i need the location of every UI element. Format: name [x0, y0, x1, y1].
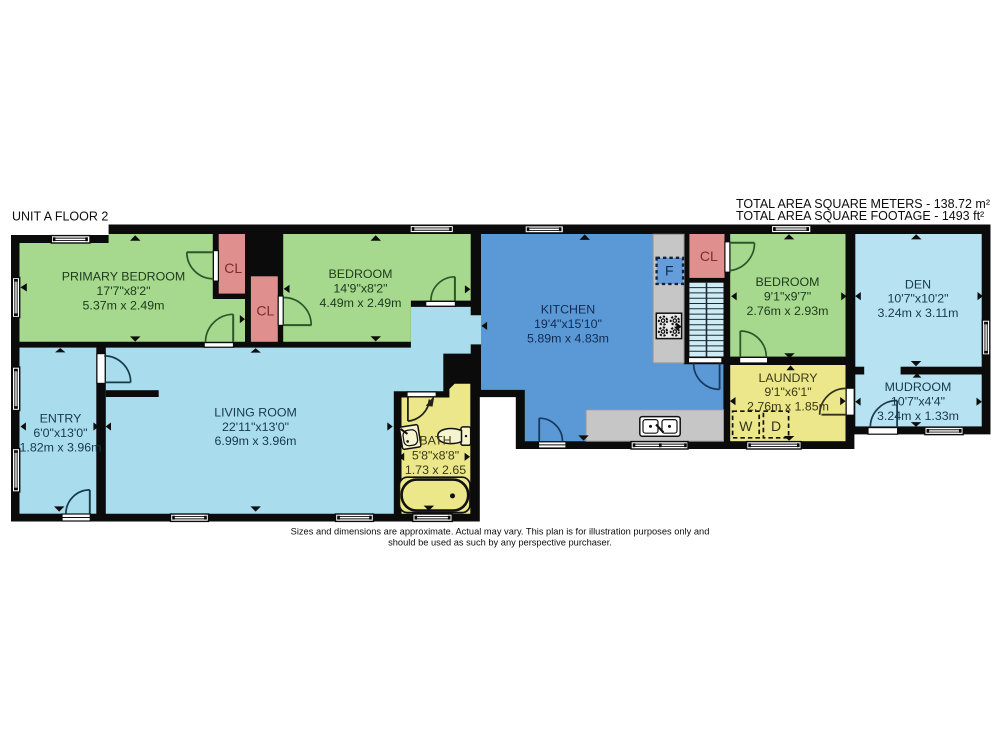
- svg-text:19'4"x15'10": 19'4"x15'10": [534, 317, 602, 331]
- svg-text:9'1"x9'7": 9'1"x9'7": [764, 289, 811, 303]
- svg-text:CL: CL: [256, 303, 274, 319]
- svg-text:W: W: [739, 418, 753, 434]
- svg-text:5'8"x8'8": 5'8"x8'8": [412, 449, 459, 463]
- svg-text:BATH: BATH: [419, 434, 451, 448]
- svg-text:PRIMARY BEDROOM: PRIMARY BEDROOM: [62, 269, 185, 283]
- svg-text:5.37m x 2.49m: 5.37m x 2.49m: [83, 298, 165, 312]
- svg-text:1.82m x 3.96m: 1.82m x 3.96m: [20, 441, 102, 455]
- svg-text:3.24m x 3.11m: 3.24m x 3.11m: [877, 306, 958, 320]
- svg-text:F: F: [665, 262, 674, 278]
- svg-text:9'1"x6'1": 9'1"x6'1": [764, 385, 811, 399]
- svg-text:LAUNDRY: LAUNDRY: [759, 371, 818, 385]
- svg-text:2.76m x 2.93m: 2.76m x 2.93m: [747, 304, 829, 318]
- svg-text:LIVING ROOM: LIVING ROOM: [214, 406, 297, 420]
- svg-text:should be used as such by any: should be used as such by any perspectiv…: [388, 537, 612, 547]
- svg-text:2.76m x 1.85m: 2.76m x 1.85m: [747, 399, 829, 413]
- svg-text:BEDROOM: BEDROOM: [755, 275, 819, 289]
- svg-text:6'0"x13'0": 6'0"x13'0": [33, 426, 87, 440]
- svg-text:TOTAL AREA SQUARE FOOTAGE - 14: TOTAL AREA SQUARE FOOTAGE - 1493 ft²: [736, 209, 984, 223]
- svg-text:4.49m x 2.49m: 4.49m x 2.49m: [320, 296, 402, 310]
- svg-text:6.99m x 3.96m: 6.99m x 3.96m: [215, 434, 297, 448]
- svg-text:3.24m x 1.33m: 3.24m x 1.33m: [877, 409, 959, 423]
- svg-text:22'11"x13'0": 22'11"x13'0": [222, 420, 289, 434]
- svg-text:ENTRY: ENTRY: [40, 412, 82, 426]
- svg-text:10'7"x4'4": 10'7"x4'4": [891, 394, 945, 408]
- svg-text:14'9"x8'2": 14'9"x8'2": [333, 282, 387, 296]
- svg-text:17'7"x8'2": 17'7"x8'2": [96, 284, 150, 298]
- svg-text:UNIT A FLOOR 2: UNIT A FLOOR 2: [12, 209, 108, 223]
- svg-text:CL: CL: [224, 260, 242, 276]
- svg-text:Sizes and dimensions are appro: Sizes and dimensions are approximate. Ac…: [291, 526, 710, 536]
- svg-text:KITCHEN: KITCHEN: [541, 303, 595, 317]
- svg-text:5.89m x 4.83m: 5.89m x 4.83m: [527, 331, 609, 345]
- svg-text:CL: CL: [700, 248, 718, 264]
- svg-text:MUDROOM: MUDROOM: [885, 380, 952, 394]
- svg-text:1.73 x 2.65: 1.73 x 2.65: [405, 463, 466, 477]
- svg-text:10'7"x10'2": 10'7"x10'2": [887, 292, 948, 306]
- svg-text:BEDROOM: BEDROOM: [328, 267, 392, 281]
- svg-text:DEN: DEN: [905, 277, 931, 291]
- svg-text:D: D: [771, 418, 781, 434]
